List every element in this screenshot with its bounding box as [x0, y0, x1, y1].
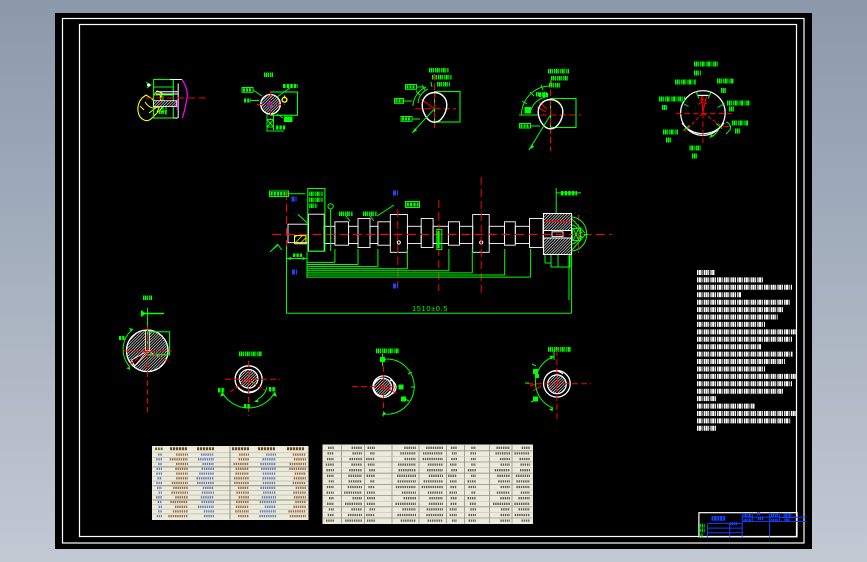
svg-text:1510±0.5: 1510±0.5: [412, 304, 448, 313]
